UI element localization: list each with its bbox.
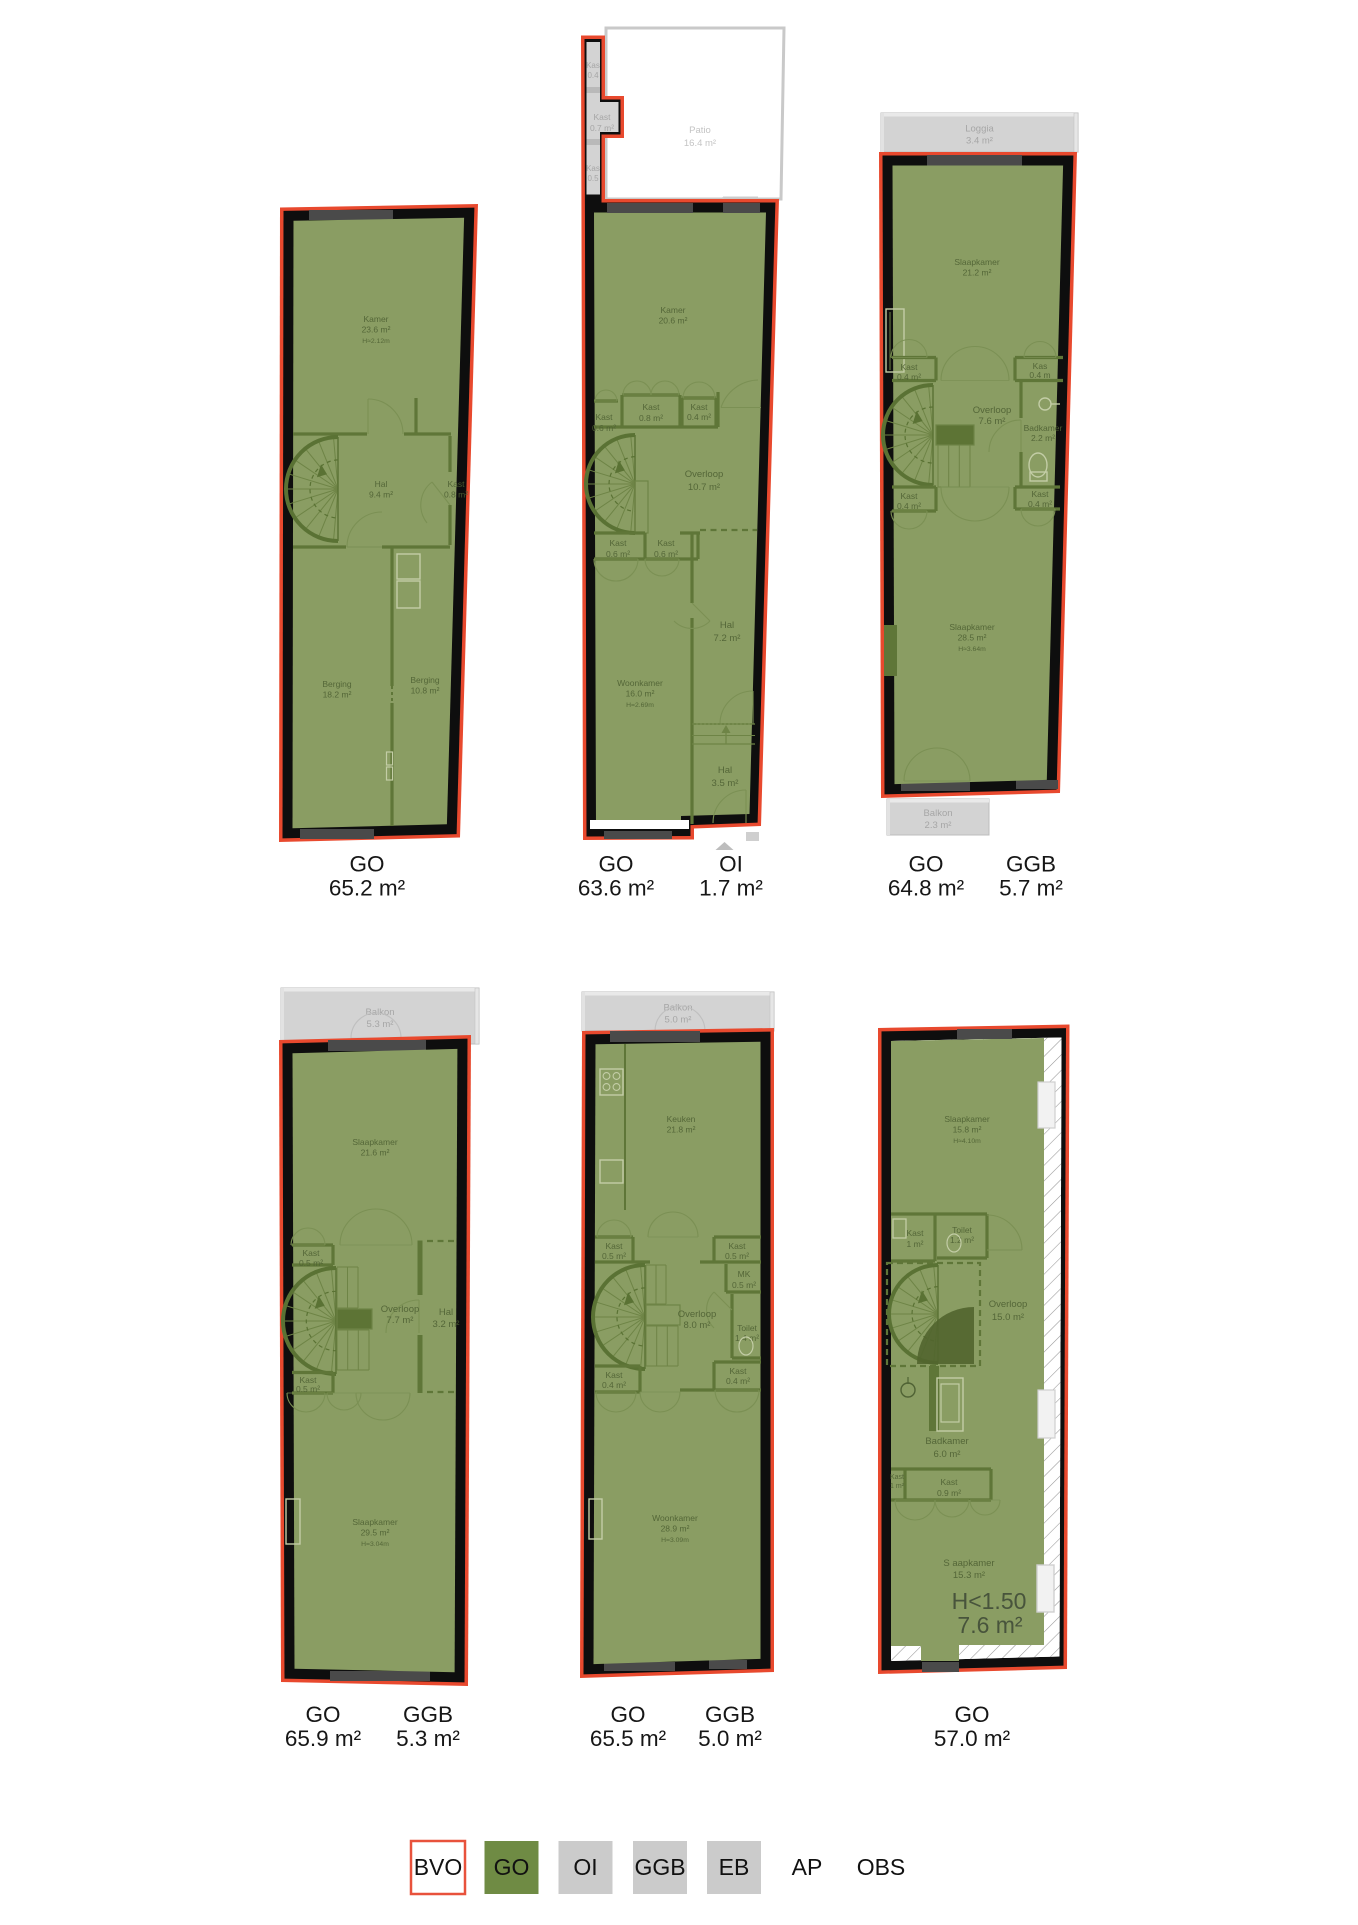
svg-text:0.5 m²: 0.5 m² bbox=[732, 1280, 756, 1290]
svg-text:Kast: Kast bbox=[302, 1248, 320, 1258]
svg-text:15.8 m²: 15.8 m² bbox=[953, 1125, 982, 1135]
svg-text:Kas: Kas bbox=[586, 61, 600, 70]
svg-text:GO: GO bbox=[349, 852, 384, 877]
svg-text:Kast: Kast bbox=[729, 1366, 747, 1376]
svg-text:0.4 m²: 0.4 m² bbox=[726, 1376, 750, 1386]
svg-text:GO: GO bbox=[305, 1702, 340, 1727]
svg-text:0.7 m²: 0.7 m² bbox=[590, 123, 614, 133]
svg-text:Kast: Kast bbox=[900, 362, 918, 372]
svg-text:Kast: Kast bbox=[690, 402, 708, 412]
svg-text:Overloop: Overloop bbox=[685, 469, 724, 480]
svg-text:5.0 m²: 5.0 m² bbox=[698, 1726, 762, 1751]
svg-text:Hal: Hal bbox=[718, 765, 732, 776]
svg-text:Kast: Kast bbox=[595, 412, 613, 422]
svg-text:Berging: Berging bbox=[322, 679, 352, 689]
svg-text:Kast: Kast bbox=[890, 1474, 904, 1481]
svg-text:Balkon: Balkon bbox=[923, 808, 952, 819]
svg-text:GGB: GGB bbox=[403, 1702, 453, 1727]
svg-text:Kast: Kast bbox=[1031, 489, 1049, 499]
svg-text:H=2.69m: H=2.69m bbox=[626, 702, 654, 709]
svg-text:28.9 m²: 28.9 m² bbox=[661, 1524, 690, 1534]
svg-text:Kas: Kas bbox=[586, 164, 600, 173]
svg-text:0.5 m²: 0.5 m² bbox=[296, 1384, 320, 1394]
svg-text:10.8 m²: 10.8 m² bbox=[411, 686, 440, 696]
svg-text:0.8 m²: 0.8 m² bbox=[639, 413, 663, 423]
svg-text:Kast: Kast bbox=[447, 479, 465, 489]
svg-text:OBS: OBS bbox=[857, 1854, 906, 1880]
svg-text:16.0 m²: 16.0 m² bbox=[626, 689, 655, 699]
svg-text:Balkon: Balkon bbox=[365, 1007, 394, 1018]
svg-text:65.9 m²: 65.9 m² bbox=[285, 1726, 362, 1751]
svg-text:H=3.04m: H=3.04m bbox=[361, 1541, 389, 1548]
svg-text:64.8 m²: 64.8 m² bbox=[888, 876, 965, 901]
svg-text:0.6 m²: 0.6 m² bbox=[654, 549, 678, 559]
svg-text:Berging: Berging bbox=[410, 675, 440, 685]
svg-text:Kast: Kast bbox=[728, 1241, 746, 1251]
svg-text:3.4 m²: 3.4 m² bbox=[966, 136, 993, 147]
svg-text:23.6 m²: 23.6 m² bbox=[362, 325, 391, 335]
svg-text:BVO: BVO bbox=[414, 1854, 463, 1880]
svg-text:0.4 m²: 0.4 m² bbox=[602, 1380, 626, 1390]
svg-text:0.4 m²: 0.4 m² bbox=[897, 372, 921, 382]
svg-text:7.6 m²: 7.6 m² bbox=[979, 416, 1006, 427]
svg-text:21.6 m²: 21.6 m² bbox=[361, 1148, 390, 1158]
svg-text:Overloop: Overloop bbox=[381, 1304, 420, 1315]
svg-text:9.4 m²: 9.4 m² bbox=[369, 490, 393, 500]
svg-text:Kast: Kast bbox=[940, 1477, 958, 1487]
svg-text:Kast: Kast bbox=[605, 1370, 623, 1380]
svg-text:0.5 m²: 0.5 m² bbox=[602, 1251, 626, 1261]
svg-text:H<1.50: H<1.50 bbox=[952, 1588, 1027, 1614]
svg-text:18.2 m²: 18.2 m² bbox=[323, 690, 352, 700]
svg-text:2.3 m²: 2.3 m² bbox=[925, 820, 952, 831]
svg-text:1 m²: 1 m² bbox=[890, 1483, 905, 1490]
svg-text:21.8 m²: 21.8 m² bbox=[667, 1125, 696, 1135]
svg-text:0.6 m²: 0.6 m² bbox=[606, 549, 630, 559]
svg-text:Woonkamer: Woonkamer bbox=[652, 1513, 698, 1523]
svg-text:65.2 m²: 65.2 m² bbox=[329, 876, 406, 901]
svg-text:Kast: Kast bbox=[609, 538, 627, 548]
svg-text:H=3.09m: H=3.09m bbox=[661, 1537, 689, 1544]
svg-text:0.4 m²: 0.4 m² bbox=[687, 412, 711, 422]
svg-text:Hal: Hal bbox=[439, 1307, 453, 1318]
svg-text:GO: GO bbox=[610, 1702, 645, 1727]
svg-text:GGB: GGB bbox=[705, 1702, 755, 1727]
svg-text:H≈2.12m: H≈2.12m bbox=[362, 338, 390, 345]
svg-text:GGB: GGB bbox=[634, 1854, 685, 1880]
svg-text:GO: GO bbox=[494, 1854, 530, 1880]
svg-text:Kast: Kast bbox=[593, 112, 611, 122]
svg-text:0.6 m²: 0.6 m² bbox=[592, 423, 616, 433]
svg-text:Kast: Kast bbox=[605, 1241, 623, 1251]
svg-text:H≈3.64m: H≈3.64m bbox=[958, 646, 986, 653]
svg-text:Slaapkamer: Slaapkamer bbox=[352, 1137, 398, 1147]
svg-text:EB: EB bbox=[719, 1854, 750, 1880]
svg-text:Woonkamer: Woonkamer bbox=[617, 678, 663, 688]
svg-text:3.2 m²: 3.2 m² bbox=[433, 1319, 460, 1330]
svg-text:0.5: 0.5 bbox=[587, 174, 599, 183]
svg-text:Overloop: Overloop bbox=[989, 1299, 1028, 1310]
svg-text:63.6 m²: 63.6 m² bbox=[578, 876, 655, 901]
svg-text:OI: OI bbox=[573, 1854, 597, 1880]
svg-text:2.2 m²: 2.2 m² bbox=[1031, 433, 1055, 443]
svg-text:Kamer: Kamer bbox=[363, 314, 388, 324]
svg-text:GO: GO bbox=[954, 1702, 989, 1727]
svg-text:AP: AP bbox=[792, 1854, 823, 1880]
svg-text:0.5 m²: 0.5 m² bbox=[725, 1251, 749, 1261]
svg-text:S aapkamer: S aapkamer bbox=[943, 1558, 994, 1569]
svg-text:8.0 m²: 8.0 m² bbox=[684, 1320, 711, 1331]
svg-text:21.2 m²: 21.2 m² bbox=[963, 268, 992, 278]
svg-text:Kast: Kast bbox=[642, 402, 660, 412]
svg-text:Kamer: Kamer bbox=[660, 305, 685, 315]
svg-text:0.5 m²: 0.5 m² bbox=[299, 1258, 323, 1268]
svg-text:7.6 m²: 7.6 m² bbox=[957, 1612, 1023, 1638]
svg-text:1.2 m²: 1.2 m² bbox=[950, 1235, 974, 1245]
svg-text:1 m²: 1 m² bbox=[907, 1239, 924, 1249]
svg-text:3.5 m²: 3.5 m² bbox=[712, 778, 739, 789]
svg-text:Slaapkamer: Slaapkamer bbox=[944, 1114, 990, 1124]
svg-text:29.5 m²: 29.5 m² bbox=[361, 1528, 390, 1538]
svg-text:Slaapkamer: Slaapkamer bbox=[949, 622, 995, 632]
svg-text:Kast: Kast bbox=[900, 491, 918, 501]
svg-text:0.4: 0.4 bbox=[587, 71, 599, 80]
svg-text:20.6 m²: 20.6 m² bbox=[659, 316, 688, 326]
svg-text:5.3 m²: 5.3 m² bbox=[396, 1726, 460, 1751]
svg-text:Loggia: Loggia bbox=[965, 124, 994, 135]
svg-text:65.5 m²: 65.5 m² bbox=[590, 1726, 667, 1751]
svg-text:Kast: Kast bbox=[906, 1228, 924, 1238]
svg-text:GGB: GGB bbox=[1006, 852, 1056, 877]
svg-text:5.3 m²: 5.3 m² bbox=[367, 1019, 394, 1030]
svg-text:OI: OI bbox=[719, 852, 743, 877]
svg-text:15.3 m²: 15.3 m² bbox=[953, 1570, 985, 1581]
svg-text:Patio: Patio bbox=[689, 125, 711, 136]
svg-text:7.7 m²: 7.7 m² bbox=[387, 1315, 414, 1326]
svg-text:57.0 m²: 57.0 m² bbox=[934, 1726, 1011, 1751]
svg-text:5.7 m²: 5.7 m² bbox=[999, 876, 1063, 901]
svg-text:5.0 m²: 5.0 m² bbox=[665, 1015, 692, 1026]
svg-text:Kast: Kast bbox=[657, 538, 675, 548]
svg-text:GO: GO bbox=[598, 852, 633, 877]
svg-text:7.2 m²: 7.2 m² bbox=[714, 633, 741, 644]
svg-text:Keuken: Keuken bbox=[667, 1114, 696, 1124]
svg-text:1.7 m²: 1.7 m² bbox=[699, 876, 763, 901]
svg-text:Overloop: Overloop bbox=[973, 405, 1012, 416]
svg-text:Hal: Hal bbox=[375, 479, 388, 489]
svg-text:Slaapkamer: Slaapkamer bbox=[352, 1517, 398, 1527]
svg-text:Balkon: Balkon bbox=[663, 1003, 692, 1014]
svg-text:1.4 m²: 1.4 m² bbox=[735, 1333, 759, 1343]
svg-text:0.8 m²: 0.8 m² bbox=[444, 490, 468, 500]
svg-text:6.0 m²: 6.0 m² bbox=[934, 1449, 961, 1460]
svg-text:Toilet: Toilet bbox=[737, 1323, 757, 1333]
svg-text:Hal: Hal bbox=[720, 620, 734, 631]
svg-text:Badkamer: Badkamer bbox=[925, 1436, 968, 1447]
svg-text:10.7 m²: 10.7 m² bbox=[688, 482, 720, 493]
svg-text:Slaapkamer: Slaapkamer bbox=[954, 257, 1000, 267]
svg-text:GO: GO bbox=[908, 852, 943, 877]
svg-text:0.4 m: 0.4 m bbox=[1029, 370, 1050, 380]
svg-text:0.4 m²: 0.4 m² bbox=[1028, 499, 1052, 509]
svg-text:MK: MK bbox=[738, 1269, 751, 1279]
svg-text:28.5 m²: 28.5 m² bbox=[958, 633, 987, 643]
svg-text:0.4 m²: 0.4 m² bbox=[897, 501, 921, 511]
svg-text:15.0 m²: 15.0 m² bbox=[992, 1312, 1024, 1323]
svg-text:16.4 m²: 16.4 m² bbox=[684, 138, 716, 149]
svg-text:H≈4.10m: H≈4.10m bbox=[953, 1138, 981, 1145]
svg-text:Overloop: Overloop bbox=[678, 1309, 717, 1320]
svg-text:Badkamer: Badkamer bbox=[1024, 423, 1063, 433]
svg-text:0.9 m²: 0.9 m² bbox=[937, 1488, 961, 1498]
